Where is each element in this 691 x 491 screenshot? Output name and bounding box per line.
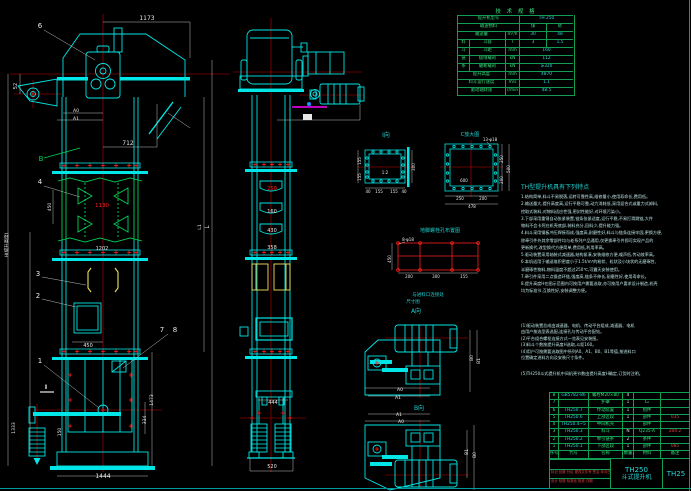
leader-8-label: 8 — [173, 326, 177, 334]
parts-cell: 204 2 — [660, 428, 689, 435]
spec-cell: 料斗运行速度 — [457, 79, 505, 87]
tension-spring — [251, 424, 267, 452]
parts-row: 7护罩1L₀ — [549, 399, 689, 406]
spec-row: 链极限载荷kN112 — [457, 55, 574, 63]
signature-row: 设计 校核 标准化 批准 日期 — [550, 478, 610, 488]
dim-200-c-bottom: 200 — [479, 196, 487, 201]
revision-row: 标记 处数 分区 更改文件号 签名 年月日 — [550, 469, 610, 479]
connect-label-line2: 尺寸图 — [406, 298, 420, 305]
parts-cell: 条件 — [633, 436, 660, 443]
anchor-grid-dims — [392, 242, 478, 273]
spec-cell: 砂 — [546, 23, 573, 31]
dim-b1-plan-top: B1 — [476, 358, 482, 364]
dim-a1-plan-top: A1 — [395, 395, 401, 401]
drawing-number: TH25 — [667, 470, 685, 478]
dim-444-side: 444 — [268, 400, 278, 406]
dim-1173: 1173 — [139, 15, 154, 22]
parts-cell: TH250.7 — [558, 407, 588, 414]
parts-cell: TH250.4~5 — [558, 421, 588, 428]
bolt-holes — [366, 151, 404, 182]
feature-line: 除牵引件外其余零部件均与老系列产品通用,仅更换牵引件即可实现产品的 — [521, 237, 691, 244]
spec-cell: 30 — [519, 31, 546, 39]
parts-cell: TH250.2 — [558, 436, 588, 443]
centerlines — [10, 14, 503, 490]
parts-cell — [622, 421, 633, 428]
dim-a1-head: A1 — [73, 116, 79, 122]
parts-cell: 035 — [660, 414, 689, 421]
parts-cell: 1 — [549, 443, 558, 450]
leader-4-label: 4 — [38, 178, 43, 186]
bucket — [114, 216, 128, 232]
parts-cell: 中间机壳 — [588, 421, 622, 428]
spec-cell: 煤 — [519, 23, 546, 31]
parts-cell: 085 — [660, 443, 689, 450]
spec-row: 驱动轴转速r/min48.5 — [457, 87, 574, 95]
spec-cell: 48.5 — [519, 87, 573, 95]
dim-520-side: 520 — [267, 464, 277, 470]
spec-row: 提升机型号TH 250 — [457, 15, 574, 23]
dim-b0-plan-bot: B0 — [472, 452, 478, 458]
features-lines: 1.结构简单,料斗不易脱落,运转可靠性高,维修量小,使用寿命长,费用低。2.输送… — [521, 193, 691, 295]
dim-358-side: 358 — [267, 245, 277, 251]
parts-cell: 2 — [549, 436, 558, 443]
dim-600-c: 600 — [460, 178, 468, 183]
plan-view-bottom — [365, 425, 457, 490]
dim-40-i-b: 40 — [401, 189, 407, 194]
title-block-revision-area: 标记 处数 分区 更改文件号 签名 年月日 设计 校核 标准化 批准 日期 — [550, 459, 610, 488]
connect-label-line1: 与进料口连接处 — [412, 291, 444, 298]
spec-row: 条破断载荷kN≥320 — [457, 63, 574, 71]
spec-cell: 1.5 — [546, 39, 573, 47]
parts-cell: 传动装置 — [588, 407, 622, 414]
spec-row: 输送量m³/h3048 — [457, 31, 574, 39]
parts-cell: 组件 — [633, 407, 660, 414]
dim-1473: 1473 — [149, 394, 155, 406]
model-number: TH250 — [625, 466, 648, 474]
dim-430-side: 430 — [267, 228, 277, 234]
view-i-scale: 1:2 — [382, 170, 389, 175]
label-8-phi18: 8-φ18 — [402, 237, 414, 242]
dim-l-right: L — [204, 225, 211, 229]
leader-6-label: 6 — [38, 22, 43, 30]
parts-cell — [660, 421, 689, 428]
spec-cell: mm — [505, 47, 519, 55]
dim-1202: 1202 — [96, 246, 109, 252]
front-view-dims — [8, 22, 212, 476]
parts-cell: 1 — [622, 407, 633, 414]
spec-cell: 极限载荷 — [469, 55, 505, 63]
spec-table-body: 提升机型号TH 250输送物料煤砂输送量m³/h3048料斗容l31.5斗斗距m… — [457, 15, 575, 96]
feature-line: 挖取式装料,对物料适应性强,密封性能好,对环境污染小。 — [521, 208, 691, 215]
dim-250-c-bottom: 250 — [456, 196, 464, 201]
spec-cell: 条 — [457, 63, 469, 71]
dim-155-i-bb: 155 — [390, 189, 398, 194]
side-view — [238, 30, 364, 458]
note-line: 位置确定进料方向及安装尺寸条件。 — [521, 355, 691, 361]
parts-row: 8GB5782-86螺栓M20×804 — [549, 392, 689, 399]
dim-a0-plan-top: A0 — [397, 387, 403, 393]
spec-cell: 驱动轴转速 — [457, 87, 505, 95]
view-c-label: C放大图 — [461, 131, 480, 138]
parts-cell: 数量 — [622, 450, 633, 457]
view-c-dims — [445, 142, 509, 204]
features-block: TH型提升机具有下列特点 1.结构简单,料斗不易脱落,运转可靠性高,维修量小,使… — [521, 182, 691, 295]
dim-155-grid: 155 — [460, 274, 468, 279]
notes-footer: (5)TH250斗式提升机中间机壳节数由提升高度H确定,订货时注明。 — [521, 371, 691, 377]
head-casing — [63, 34, 185, 97]
spec-table: 技 术 规 格 提升机型号TH 250输送物料煤砂输送量m³/h3048料斗容l… — [457, 7, 575, 96]
bolt-holes — [446, 145, 496, 189]
parts-cell — [633, 392, 660, 399]
parts-cell: TH250.1 — [558, 443, 588, 450]
parts-cell: 上部区段 — [588, 414, 622, 421]
spec-cell: 3 — [519, 39, 546, 47]
leader-1-label: 1 — [38, 357, 42, 365]
spec-cell: 输送物料 — [457, 23, 519, 31]
spec-cell: 破断载荷 — [469, 63, 505, 71]
dim-200-grid-a: 200 — [405, 274, 413, 279]
parts-cell: 下部区段 — [588, 443, 622, 450]
parts-cell: 料斗 — [588, 428, 622, 435]
dim-1444: 1444 — [95, 473, 110, 480]
spec-cell: 链 — [457, 55, 469, 63]
dim-a0-head: A0 — [73, 108, 79, 114]
feature-line: 2.输送量大,提升高度高,运行平稳可靠,动力消耗低,采用混合式或重力式卸料, — [521, 200, 691, 207]
spec-cell: 1.1 — [519, 79, 573, 87]
dim-500-c-right: 500 — [506, 165, 511, 173]
parts-cell — [660, 407, 689, 414]
spec-cell: m/s — [505, 79, 519, 87]
spec-cell: l — [505, 39, 519, 47]
dim-40-i-a: 40 — [365, 189, 371, 194]
features-title: TH型提升机具有下列特点 — [521, 182, 691, 191]
parts-cell: 护罩 — [588, 399, 622, 406]
leader-7-label: 7 — [160, 326, 164, 334]
dim-b1-plan-bot: B1 — [464, 449, 470, 455]
parts-table-body: 8GB5782-86螺栓M20×8047护罩1L₀6TH250.7传动装置1组件… — [549, 392, 689, 458]
parts-cell: TH250.6 — [558, 414, 588, 421]
anchor-grid-title: 地脚螺栓孔布置图 — [420, 227, 460, 234]
parts-cell: N — [622, 428, 633, 435]
parts-cell: 备注 — [660, 450, 689, 457]
dim-450-bucket: 450 — [47, 203, 53, 212]
dim-l1-right: L1 — [197, 224, 203, 230]
dim-a0-plan-bot: A0 — [398, 419, 404, 425]
spec-cell: TH 250 — [519, 15, 573, 23]
dim-160-side: 160 — [267, 209, 277, 215]
tension-spring — [275, 424, 291, 452]
spec-cell: m³/h — [505, 31, 519, 39]
dim-155-i-left-b: 155 — [357, 173, 362, 181]
boot-base — [57, 452, 148, 466]
view-c — [445, 144, 498, 191]
dim-200-c-right: 200 — [499, 176, 504, 184]
dim-250-side: 250 — [267, 186, 277, 192]
notes-block: (1)驱动装置总成由减速器、电机、传动平台组成,减速器、电机 由用户按选型表选配… — [521, 323, 691, 378]
title-block-drawing-no-area: TH25 — [662, 459, 689, 488]
spec-cell: 112 — [519, 55, 573, 63]
parts-row: 4TH250.4~5中间机壳部件 — [549, 421, 689, 428]
dim-1130: 1130 — [95, 203, 109, 209]
dim-150: 150 — [57, 428, 63, 437]
section-ii-label: Ⅱ — [45, 384, 48, 391]
spec-cell: mm — [505, 71, 519, 79]
parts-cell: 5 — [549, 414, 558, 421]
label-13-phi18: 13-φ18 — [483, 137, 498, 142]
parts-cell: 序号 — [549, 450, 558, 457]
backstop-bracket — [18, 79, 57, 106]
spec-row: 斗斗距mm160 — [457, 47, 574, 55]
side-view-dims — [250, 104, 360, 471]
parts-cell: GB5782-86 — [558, 392, 588, 399]
parts-cell: Q235-A — [633, 428, 660, 435]
spec-cell: 输送量 — [457, 31, 505, 39]
dim-height-h: H(提升高度) — [3, 232, 10, 257]
feature-line: 更新换代,改型换代方便简单,费用低,利用率高。 — [521, 244, 691, 251]
dim-334: 334 — [142, 416, 148, 425]
parts-cell: L₀ — [633, 399, 660, 406]
feature-line: 6.本机适用于输送堆积密度小于1.5t/m³的粉状、粒状及小块状的无磨琢性、 — [521, 258, 691, 265]
feature-line: 8.提升高度H在图示范围内可按用户需要选取,亦可按用户要求设计制造,机壳 — [521, 280, 691, 287]
feature-line: 1.结构简单,料斗不易脱落,运转可靠性高,维修量小,使用寿命长,费用低。 — [521, 193, 691, 200]
parts-row: 序号代号名称数量材料备注 — [549, 450, 689, 457]
dim-450-door: 450 — [83, 343, 93, 349]
parts-cell: 4 — [622, 392, 633, 399]
dim-712: 712 — [122, 140, 134, 147]
spec-cell: r/min — [505, 87, 519, 95]
parts-row: 5TH250.6上部区段1部件035 — [549, 414, 689, 421]
boot-housing-side — [256, 318, 292, 340]
dim-300-grid: 300 — [432, 274, 440, 279]
cad-canvas: 1173652A0A1712B44501130120232450781ⅡH(提升… — [0, 0, 691, 491]
parts-cell: 4 — [549, 421, 558, 428]
feature-line: 3.下部采用重锤自动张紧装置,链条张紧适度,运行平稳,不易打滑跳链,大件 — [521, 215, 691, 222]
spec-row: 料斗运行速度m/s1.1 — [457, 79, 574, 87]
parts-row: 2TH250.2牵引链条2条件 — [549, 436, 689, 443]
feature-line: 半磨琢性物料,物料温度不超过250℃,可露天安装使用。 — [521, 266, 691, 273]
parts-cell — [558, 399, 588, 406]
parts-cell — [660, 392, 689, 399]
dim-a1-plan-bot: A1 — [396, 412, 402, 418]
parts-cell: TH250.3 — [558, 428, 588, 435]
dim-155-i-ba: 155 — [375, 189, 383, 194]
parts-row: 3TH250.3料斗NQ235-A204 2 — [549, 428, 689, 435]
spec-cell: 160 — [519, 47, 573, 55]
parts-cell: 2 — [622, 436, 633, 443]
spec-cell: 斗容 — [469, 39, 505, 47]
spec-cell: kN — [505, 63, 519, 71]
parts-cell: 部件 — [633, 421, 660, 428]
spec-cell: 料 — [457, 39, 469, 47]
parts-cell: 材料 — [633, 450, 660, 457]
dim-250-c-right: 250 — [499, 155, 504, 163]
spec-row: 输送物料煤砂 — [457, 23, 574, 31]
parts-cell: 部件 — [633, 443, 660, 450]
parts-cell: 螺栓M20×80 — [588, 392, 622, 399]
front-view-green-section — [44, 148, 142, 242]
bucket — [114, 188, 128, 204]
feature-line: 物料不会卡死在机壳底部,装料充分,回料少,提升能力强。 — [521, 222, 691, 229]
parts-cell: 1 — [622, 443, 633, 450]
parts-cell: 3 — [549, 428, 558, 435]
parts-cell: 8 — [549, 392, 558, 399]
inspection-door — [74, 303, 101, 333]
parts-row: 1TH250.1下部区段1部件085 — [549, 443, 689, 450]
dim-300-i-right: 300 — [411, 163, 416, 171]
spec-cell: 提升高度 — [457, 71, 505, 79]
spec-cell: ≥320 — [519, 63, 573, 71]
view-i-label: Ⅰ向 — [382, 131, 390, 139]
view-a-label: A向 — [411, 307, 421, 315]
spec-row: 料斗容l31.5 — [457, 39, 574, 47]
parts-cell: 6 — [549, 407, 558, 414]
dim-478-c: 478 — [468, 204, 476, 209]
feature-line: 4.料斗采用钢板冲压焊接而成,强度高,耐磨性好,料斗与链条连接牢固,更换方便, — [521, 229, 691, 236]
spec-cell: 提升机型号 — [457, 15, 519, 23]
title-block-name-area: TH250 斗式提升机 — [610, 459, 662, 488]
feature-line: 7.牵引件采用二点锻造环链,强度高,链条不伸长,耐磨性好,使用寿命长。 — [521, 273, 691, 280]
dim-1333: 1333 — [11, 422, 17, 434]
parts-cell: 部件 — [633, 414, 660, 421]
parts-cell — [660, 399, 689, 406]
spec-cell: kN — [505, 55, 519, 63]
spec-row: 提升高度mm4870 — [457, 71, 574, 79]
reducer — [308, 52, 344, 74]
feature-line: 5.驱动装置采用轴装式减速器,结构紧凑,安装维修方便,噪声低,传动效率高。 — [521, 251, 691, 258]
spec-cell: 斗 — [457, 47, 469, 55]
view-i-dims — [358, 150, 412, 188]
parts-cell: 7 — [549, 399, 558, 406]
feature-line: 均为标准节,互换性好,安装调整方便。 — [521, 287, 691, 294]
anchor-bolt-grid — [397, 242, 480, 272]
parts-cell: 名称 — [588, 450, 622, 457]
spec-table-title: 技 术 规 格 — [457, 7, 575, 15]
parts-cell — [660, 436, 689, 443]
machine-name: 斗式提升机 — [621, 474, 651, 481]
parts-cell: 代号 — [558, 450, 588, 457]
label-b-section: B — [39, 155, 44, 163]
grip-dot — [307, 102, 311, 106]
parts-cell: 1 — [622, 399, 633, 406]
dim-450-grid: 450 — [387, 255, 392, 263]
spec-cell: 斗距 — [469, 47, 505, 55]
leader-3-label: 3 — [36, 270, 40, 278]
notes-lines: (1)驱动装置总成由减速器、电机、传动平台组成,减速器、电机 由用户按选型表选配… — [521, 323, 691, 361]
spec-cell: 48 — [546, 31, 573, 39]
parts-cell: 牵引链条 — [588, 436, 622, 443]
dim-155-i-left-a: 155 — [357, 157, 362, 165]
view-b-label: B向 — [414, 404, 424, 412]
parts-table: 8GB5782-86螺栓M20×8047护罩1L₀6TH250.7传动装置1组件… — [549, 392, 690, 459]
parts-row: 6TH250.7传动装置1组件 — [549, 407, 689, 414]
parts-cell: 1 — [622, 414, 633, 421]
spec-cell: 4870 — [519, 71, 573, 79]
plan-view-top — [365, 325, 457, 395]
leader-2-label: 2 — [36, 292, 40, 300]
dim-b0-plan-top: B0 — [469, 355, 475, 361]
title-block: 标记 处数 分区 更改文件号 签名 年月日 设计 校核 标准化 批准 日期 TH… — [549, 458, 690, 489]
dim-52: 52 — [13, 83, 19, 89]
